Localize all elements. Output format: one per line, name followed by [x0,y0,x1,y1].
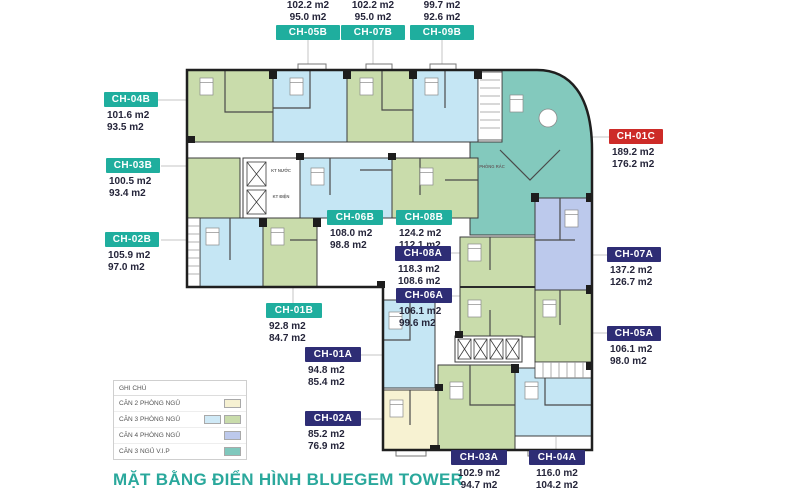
unit-label-ch-01b: CH-01B 92.8 m2 84.7 m2 [266,303,322,344]
unit-label-ch-05a: CH-05A 106.1 m2 98.0 m2 [607,326,661,367]
round-table [539,109,557,127]
unit-code-badge: CH-06A [396,288,452,303]
unit-label-ch-02b: CH-02B 105.9 m2 97.0 m2 [105,232,159,273]
unit-area-gross: 189.2 m2 [609,147,663,159]
unit-label-ch-08a: CH-08A 118.3 m2 108.6 m2 [395,246,451,287]
unit-area-net: 93.5 m2 [104,122,158,134]
unit-label-ch-06b: CH-06B 108.0 m2 98.8 m2 [327,210,383,251]
legend-label: CĂN 4 PHÒNG NGỦ [119,432,180,439]
unit-area-net: 176.2 m2 [609,159,663,171]
unit-label-ch-07a: CH-07A 137.2 m2 126.7 m2 [607,247,661,288]
unit-code-badge: CH-08A [395,246,451,261]
unit-area-net: 108.6 m2 [395,276,451,288]
unit-label-ch-09b: 99.7 m2 92.6 m2 CH-09B [410,0,474,40]
trash-room-label: PHÒNG RÁC [479,164,505,169]
unit-area-net: 94.7 m2 [451,480,507,492]
unit-area-net: 84.7 m2 [266,333,322,345]
unit-area-gross: 124.2 m2 [396,228,452,240]
unit-area-net: 97.0 m2 [105,262,159,274]
unit-code-badge: CH-05A [607,326,661,341]
unit-label-ch-06a: CH-06A 106.1 m2 99.6 m2 [396,288,452,329]
unit-area-net: 104.2 m2 [529,480,585,492]
unit-area-net: 98.0 m2 [607,356,661,368]
unit-code-badge: CH-02A [305,411,361,426]
unit-label-ch-02a: CH-02A 85.2 m2 76.9 m2 [305,411,361,452]
legend-swatch-blue [204,415,221,424]
unit-area-gross: 99.7 m2 [410,0,474,12]
unit-code-badge: CH-04A [529,450,585,465]
unit-area-net: 92.6 m2 [410,12,474,24]
unit-code-badge: CH-06B [327,210,383,225]
unit-area-gross: 100.5 m2 [106,176,160,188]
unit-code-badge: CH-04B [104,92,158,107]
unit-area-gross: 105.9 m2 [105,250,159,262]
legend-swatch-green [224,415,241,424]
unit-label-ch-08b: CH-08B 124.2 m2 112.1 m2 [396,210,452,251]
shaft-electric-label: KT ĐIỆN [273,194,290,199]
legend-row-3br: CĂN 3 PHÒNG NGỦ [114,412,246,428]
unit-area-net: 98.8 m2 [327,240,383,252]
legend-row-4br: CĂN 4 PHÒNG NGỦ [114,428,246,444]
legend-swatch-periwinkle [224,431,241,440]
unit-code-badge: CH-02B [105,232,159,247]
legend-label: CĂN 3 NGỦ V.I.P [119,448,170,455]
unit-area-gross: 102.2 m2 [276,0,340,12]
unit-area-gross: 101.6 m2 [104,110,158,122]
unit-code-badge: CH-05B [276,25,340,40]
unit-area-gross: 106.1 m2 [396,306,452,318]
unit-area-gross: 94.8 m2 [305,365,361,377]
unit-code-badge: CH-01A [305,347,361,362]
legend-row-2br: CĂN 2 PHÒNG NGỦ [114,396,246,412]
unit-code-badge: CH-07B [341,25,405,40]
unit-label-ch-04b: CH-04B 101.6 m2 93.5 m2 [104,92,158,133]
legend-row-vip: CĂN 3 NGỦ V.I.P [114,444,246,459]
unit-area-gross: 106.1 m2 [607,344,661,356]
unit-label-ch-03a: CH-03A 102.9 m2 94.7 m2 [451,450,507,491]
legend-swatch-teal [224,447,241,456]
unit-code-badge: CH-08B [396,210,452,225]
legend-label: CĂN 2 PHÒNG NGỦ [119,400,180,407]
unit-area-net: 126.7 m2 [607,277,661,289]
unit-code-badge: CH-03A [451,450,507,465]
unit-area-gross: 116.0 m2 [529,468,585,480]
unit-area-net: 95.0 m2 [276,12,340,24]
unit-code-badge: CH-03B [106,158,160,173]
shaft-water-label: KT NƯỚC [271,168,291,173]
page-title: MẶT BẰNG ĐIỂN HÌNH BLUEGEM TOWER [113,470,463,490]
unit-label-ch-05b: 102.2 m2 95.0 m2 CH-05B [276,0,340,40]
unit-code-badge: CH-09B [410,25,474,40]
unit-area-gross: 137.2 m2 [607,265,661,277]
unit-code-badge: CH-01B [266,303,322,318]
unit-area-net: 95.0 m2 [341,12,405,24]
unit-area-net: 85.4 m2 [305,377,361,389]
unit-code-badge: CH-01C [609,129,663,144]
unit-label-ch-03b: CH-03B 100.5 m2 93.4 m2 [106,158,160,199]
unit-label-ch-01a: CH-01A 94.8 m2 85.4 m2 [305,347,361,388]
unit-area-net: 99.6 m2 [396,318,452,330]
legend-swatch-yellow [224,399,241,408]
unit-area-gross: 118.3 m2 [395,264,451,276]
floor-plan-page: PHÒNG RÁC KT NƯỚC KT ĐIỆN 102.2 m2 95.0 … [0,0,800,500]
legend-label: CĂN 3 PHÒNG NGỦ [119,416,180,423]
unit-label-ch-07b: 102.2 m2 95.0 m2 CH-07B [341,0,405,40]
unit-area-net: 93.4 m2 [106,188,160,200]
unit-area-gross: 85.2 m2 [305,429,361,441]
unit-label-ch-04a: CH-04A 116.0 m2 104.2 m2 [529,450,585,491]
unit-area-net: 76.9 m2 [305,441,361,453]
unit-label-ch-01c: CH-01C 189.2 m2 176.2 m2 [609,129,663,170]
legend-header: GHI CHÚ [114,381,246,396]
unit-area-gross: 92.8 m2 [266,321,322,333]
legend-panel: GHI CHÚ CĂN 2 PHÒNG NGỦ CĂN 3 PHÒNG NGỦ … [113,380,247,460]
unit-area-gross: 102.2 m2 [341,0,405,12]
unit-code-badge: CH-07A [607,247,661,262]
unit-area-gross: 102.9 m2 [451,468,507,480]
unit-area-gross: 108.0 m2 [327,228,383,240]
